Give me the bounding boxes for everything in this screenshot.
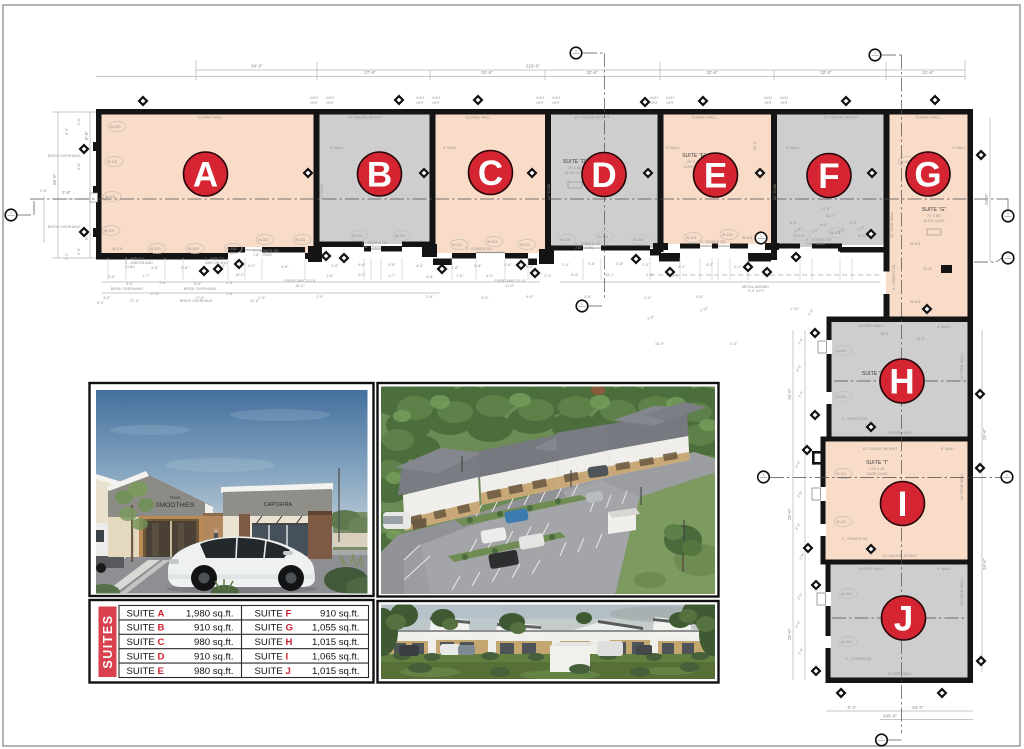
svg-text:3 - STAKES GD: 3 - STAKES GD — [466, 247, 492, 251]
svg-text:CLNG: CLNG — [125, 265, 135, 269]
svg-text:29'-6": 29'-6" — [982, 558, 987, 570]
svg-text:32'-6": 32'-6" — [706, 70, 718, 75]
svg-text:7-8" - GWG: 7-8" - GWG — [253, 253, 272, 257]
svg-text:980 sq.ft.: 980 sq.ft. — [194, 637, 233, 648]
svg-text:12" STUD: 12" STUD — [547, 184, 551, 200]
svg-text:5'-8": 5'-8" — [426, 275, 434, 279]
svg-text:W-101: W-101 — [107, 160, 118, 164]
svg-text:6'-0": 6'-0" — [77, 162, 81, 170]
svg-text:2 - STAKES GD: 2 - STAKES GD — [842, 417, 868, 421]
svg-text:E: E — [704, 157, 727, 196]
svg-text:E: E — [158, 666, 165, 677]
svg-text:6'-0": 6'-0" — [194, 282, 202, 286]
svg-text:SLOPED WALL: SLOPED WALL — [915, 116, 940, 120]
svg-text:12" STUD: 12" STUD — [320, 184, 324, 200]
svg-text:BRICK OVERHANG: BRICK OVERHANG — [180, 299, 213, 303]
svg-text:W-101: W-101 — [841, 592, 852, 596]
svg-text:1,015 sq.ft.: 1,015 sq.ft. — [312, 666, 359, 677]
svg-text:W-101: W-101 — [836, 472, 847, 476]
svg-text:A: A — [158, 608, 165, 619]
svg-text:910 sq.ft.: 910 sq.ft. — [194, 623, 233, 634]
svg-text:W-100: W-100 — [188, 247, 199, 251]
svg-text:2'-6": 2'-6" — [226, 292, 234, 296]
svg-text:SUITE: SUITE — [127, 637, 155, 648]
svg-text:4'x21: 4'x21 — [650, 96, 658, 100]
svg-text:SLOPED WALL: SLOPED WALL — [887, 672, 912, 676]
svg-text:F: F — [286, 608, 292, 619]
svg-text:W-101: W-101 — [520, 243, 531, 247]
svg-text:W-101: W-101 — [910, 300, 921, 304]
svg-text:6'-0": 6'-0" — [126, 282, 134, 286]
svg-text:4'x21: 4'x21 — [326, 96, 334, 100]
svg-text:54'-6": 54'-6" — [251, 64, 263, 69]
svg-text:SUITE: SUITE — [255, 666, 283, 677]
svg-text:D: D — [158, 652, 165, 663]
svg-text:6" WALL: 6" WALL — [330, 146, 344, 150]
svg-text:10' CEILING HEIGHT: 10' CEILING HEIGHT — [863, 447, 898, 451]
svg-text:16'-0": 16'-0" — [655, 342, 665, 346]
svg-text:GHT: GHT — [310, 101, 318, 105]
svg-text:W-101: W-101 — [910, 242, 921, 246]
svg-text:B: B — [158, 623, 165, 634]
svg-text:A: A — [193, 156, 218, 195]
svg-text:CAPOEIRA: CAPOEIRA — [264, 502, 293, 508]
svg-text:GHT: GHT — [432, 101, 440, 105]
svg-text:20'-6": 20'-6" — [923, 267, 933, 271]
svg-text:G: G — [914, 156, 941, 195]
svg-text:W-100: W-100 — [226, 247, 237, 251]
svg-text:6'-8": 6'-8" — [588, 262, 596, 266]
svg-text:7-8" - GWG: 7-8" - GWG — [575, 246, 594, 250]
svg-text:2'-6": 2'-6" — [258, 296, 266, 300]
svg-text:W-101: W-101 — [352, 234, 363, 238]
svg-text:SLOPED WALL: SLOPED WALL — [691, 116, 716, 120]
svg-text:1,055 sq.ft.: 1,055 sq.ft. — [312, 623, 359, 634]
svg-text:6'-8": 6'-8" — [526, 265, 534, 269]
svg-text:25'-0": 25'-0" — [787, 508, 792, 520]
svg-text:4" WALL: 4" WALL — [786, 146, 800, 150]
svg-text:2'-4": 2'-4" — [672, 274, 680, 278]
svg-text:6'-0": 6'-0" — [248, 264, 256, 268]
svg-text:16'-1": 16'-1" — [605, 273, 615, 277]
svg-text:4'x21: 4'x21 — [552, 96, 560, 100]
svg-text:2'-6": 2'-6" — [456, 274, 464, 278]
svg-text:27'-6": 27'-6" — [821, 207, 831, 211]
svg-text:16'-0": 16'-0" — [235, 273, 245, 277]
svg-text:SUITE: SUITE — [127, 652, 155, 663]
svg-text:GLRD CLNG: GLRD CLNG — [867, 472, 888, 476]
svg-text:W-101: W-101 — [686, 236, 697, 240]
svg-text:12" STUD WALL: 12" STUD WALL — [960, 353, 964, 380]
svg-text:GHT: GHT — [326, 101, 334, 105]
svg-text:I: I — [898, 485, 908, 524]
svg-text:W-101: W-101 — [722, 233, 733, 237]
svg-text:W-101: W-101 — [794, 234, 805, 238]
svg-text:SUITE: SUITE — [255, 637, 283, 648]
svg-text:GHT: GHT — [650, 101, 658, 105]
svg-text:2 - STAKES GD: 2 - STAKES GD — [842, 537, 868, 541]
svg-text:9'-0" A.F.F.: 9'-0" A.F.F. — [748, 289, 765, 293]
svg-text:2'-4": 2'-4" — [544, 274, 552, 278]
svg-text:2'-0": 2'-0" — [644, 296, 652, 300]
svg-text:5'-0": 5'-0" — [77, 247, 81, 255]
svg-text:W-101: W-101 — [104, 229, 115, 233]
svg-text:12" STUD WALL: 12" STUD WALL — [960, 578, 964, 605]
svg-text:6'-2": 6'-2" — [678, 265, 686, 269]
svg-text:H: H — [286, 637, 293, 648]
svg-text:2'-6": 2'-6" — [40, 189, 48, 193]
svg-text:4'-0": 4'-0" — [730, 342, 738, 346]
svg-text:W-101: W-101 — [560, 238, 571, 242]
svg-text:Texas: Texas — [170, 495, 181, 500]
svg-text:5'-8": 5'-8" — [584, 295, 592, 299]
svg-text:H: H — [889, 363, 914, 402]
svg-text:1,015 sq.ft.: 1,015 sq.ft. — [312, 637, 359, 648]
svg-text:345'-0": 345'-0" — [883, 714, 897, 719]
svg-text:W-100: W-100 — [110, 125, 121, 129]
svg-text:7-8" - GWG: 7-8" - GWG — [806, 242, 825, 246]
svg-text:27'-0": 27'-0" — [130, 299, 140, 303]
svg-text:29'-6": 29'-6" — [982, 428, 987, 440]
svg-text:2'-6": 2'-6" — [159, 281, 167, 285]
svg-text:2'-6": 2'-6" — [77, 117, 81, 125]
svg-text:2'-4": 2'-4" — [562, 263, 570, 267]
svg-text:8'-0": 8'-0" — [84, 131, 89, 140]
svg-text:6'-2": 6'-2" — [734, 265, 742, 269]
svg-text:6'-8": 6'-8" — [358, 263, 366, 267]
svg-text:W-101: W-101 — [295, 238, 306, 242]
svg-text:7-8" - GWG: 7-8" - GWG — [362, 245, 381, 249]
svg-text:5'-4": 5'-4" — [848, 705, 857, 710]
svg-text:910 sq.ft.: 910 sq.ft. — [194, 652, 233, 663]
svg-text:2'-6": 2'-6" — [326, 274, 334, 278]
svg-text:W-101: W-101 — [633, 238, 644, 242]
svg-text:2'-6": 2'-6" — [226, 281, 234, 285]
svg-text:1'-10": 1'-10" — [790, 307, 800, 311]
svg-text:SUITE: SUITE — [127, 666, 155, 677]
svg-text:16'-0": 16'-0" — [787, 388, 792, 400]
svg-text:2'-6": 2'-6" — [426, 295, 434, 299]
svg-text:D: D — [591, 156, 616, 195]
svg-text:6'-8": 6'-8" — [151, 266, 159, 270]
svg-text:6'-2": 6'-2" — [358, 273, 366, 277]
svg-text:GHT: GHT — [666, 101, 674, 105]
svg-text:4'x21: 4'x21 — [432, 96, 440, 100]
svg-text:16'-2": 16'-2" — [295, 284, 305, 288]
svg-text:J: J — [894, 600, 913, 639]
svg-text:1'-8": 1'-8" — [451, 266, 459, 270]
svg-text:SUITE: SUITE — [255, 652, 283, 663]
svg-text:W-101: W-101 — [841, 640, 852, 644]
svg-text:2 - STAKES GD: 2 - STAKES GD — [846, 657, 872, 661]
svg-text:50'-0": 50'-0" — [753, 140, 757, 150]
svg-text:5'-0": 5'-0" — [97, 301, 105, 305]
svg-text:SUITE "G": SUITE "G" — [922, 207, 947, 213]
svg-text:SLOPED WALL: SLOPED WALL — [197, 116, 222, 120]
svg-text:4'x21: 4'x21 — [764, 96, 772, 100]
svg-text:BRICK OVERHANG: BRICK OVERHANG — [111, 287, 144, 291]
svg-text:W-101: W-101 — [742, 236, 753, 240]
svg-text:FURR DWN TO 10': FURR DWN TO 10' — [284, 279, 315, 283]
svg-text:SMOOTHIES: SMOOTHIES — [155, 502, 195, 509]
svg-text:W-100: W-100 — [112, 247, 123, 251]
svg-text:W-101: W-101 — [836, 349, 847, 353]
svg-text:6'-8": 6'-8" — [474, 264, 482, 268]
svg-text:7'-2": 7'-2" — [65, 252, 69, 260]
svg-text:SUITE "I": SUITE "I" — [866, 460, 888, 466]
svg-text:5'-8": 5'-8" — [504, 263, 512, 267]
svg-text:GHT: GHT — [764, 101, 772, 105]
svg-text:21'6 X 45': 21'6 X 45' — [869, 467, 885, 471]
svg-text:18'-0": 18'-0" — [916, 337, 926, 341]
svg-text:J: J — [286, 666, 291, 677]
svg-text:16'-1": 16'-1" — [825, 214, 835, 218]
svg-text:6'-0": 6'-0" — [486, 274, 494, 278]
svg-text:4'x21: 4'x21 — [780, 96, 788, 100]
svg-text:4'x21: 4'x21 — [536, 96, 544, 100]
svg-text:1'-7": 1'-7" — [142, 274, 150, 278]
svg-text:2 - STAKES GD: 2 - STAKES GD — [700, 240, 726, 244]
svg-text:SUITE: SUITE — [127, 608, 155, 619]
svg-text:F: F — [818, 157, 839, 196]
svg-text:4" WALL: 4" WALL — [952, 146, 966, 150]
svg-text:1,065 sq.ft.: 1,065 sq.ft. — [312, 652, 359, 663]
svg-text:20' X 50': 20' X 50' — [927, 214, 941, 218]
svg-text:G: G — [286, 623, 293, 634]
svg-text:C: C — [158, 637, 165, 648]
svg-text:10' CEILING HEIGHT: 10' CEILING HEIGHT — [824, 116, 859, 120]
svg-text:4" WALL: 4" WALL — [443, 146, 457, 150]
svg-text:219'-6": 219'-6" — [526, 64, 540, 69]
svg-text:980 sq.ft.: 980 sq.ft. — [194, 666, 233, 677]
svg-text:25'-0": 25'-0" — [787, 628, 792, 640]
svg-text:SLOPED WALL: SLOPED WALL — [858, 567, 883, 571]
svg-text:SUITE: SUITE — [127, 623, 155, 634]
svg-text:2'-4": 2'-4" — [642, 263, 650, 267]
svg-text:10' CEILING HEIGHT: 10' CEILING HEIGHT — [883, 554, 918, 558]
svg-text:5'-8": 5'-8" — [108, 275, 116, 279]
svg-text:2'-6": 2'-6" — [62, 190, 71, 195]
svg-text:C: C — [478, 154, 503, 193]
svg-text:6'-2": 6'-2" — [706, 263, 714, 267]
svg-text:SUITES: SUITES — [101, 614, 115, 668]
svg-text:8'-0": 8'-0" — [65, 127, 69, 135]
svg-text:5'-8": 5'-8" — [281, 265, 289, 269]
svg-text:W-101: W-101 — [452, 243, 463, 247]
svg-text:3 - STAKES GD: 3 - STAKES GD — [892, 264, 896, 290]
svg-text:56'-6": 56'-6" — [52, 173, 57, 185]
svg-text:5'-8": 5'-8" — [481, 296, 489, 300]
svg-text:2'-8": 2'-8" — [331, 264, 339, 268]
svg-text:GHT: GHT — [780, 101, 788, 105]
svg-text:W-101: W-101 — [836, 520, 847, 524]
svg-text:6'-8": 6'-8" — [571, 273, 579, 277]
svg-text:12" STUD: 12" STUD — [773, 184, 777, 200]
svg-text:SUITE: SUITE — [255, 608, 283, 619]
svg-text:FURR DWN TO 10': FURR DWN TO 10' — [494, 279, 525, 283]
svg-text:4" WALL: 4" WALL — [937, 325, 951, 329]
svg-text:6" WALL: 6" WALL — [941, 447, 955, 451]
svg-text:SLOPED WALL: SLOPED WALL — [465, 116, 490, 120]
svg-text:2'-0": 2'-0" — [316, 295, 324, 299]
svg-text:W-101: W-101 — [487, 240, 498, 244]
svg-text:32'-6": 32'-6" — [481, 70, 493, 75]
svg-text:5'-8": 5'-8" — [103, 296, 111, 300]
svg-text:GLRD CLNG: GLRD CLNG — [924, 219, 945, 223]
svg-text:20' X 45': 20' X 45' — [568, 166, 582, 170]
svg-text:5'-8": 5'-8" — [616, 262, 624, 266]
svg-text:6'-8": 6'-8" — [416, 264, 424, 268]
svg-text:6'-8": 6'-8" — [646, 273, 654, 277]
svg-text:SLOPED WALL: SLOPED WALL — [858, 324, 883, 328]
svg-text:6" WALL: 6" WALL — [666, 146, 680, 150]
svg-text:17'-6": 17'-6" — [505, 284, 515, 288]
svg-text:1'-7": 1'-7" — [388, 274, 396, 278]
svg-text:910 sq.ft.: 910 sq.ft. — [320, 608, 359, 619]
svg-text:6'-4": 6'-4" — [820, 223, 828, 227]
svg-text:32'-6": 32'-6" — [820, 70, 832, 75]
svg-text:GHT: GHT — [416, 101, 424, 105]
svg-text:SUITE "D": SUITE "D" — [563, 159, 587, 165]
svg-text:I: I — [286, 652, 289, 663]
svg-text:W-101: W-101 — [836, 395, 847, 399]
svg-text:BRICK OVERHANG: BRICK OVERHANG — [184, 287, 217, 291]
svg-text:10' CEILING HEIGHT: 10' CEILING HEIGHT — [348, 116, 383, 120]
svg-text:1,980 sq.ft.: 1,980 sq.ft. — [186, 608, 233, 619]
svg-text:SLOPED WALL: SLOPED WALL — [887, 431, 912, 435]
svg-text:SUITE: SUITE — [255, 623, 283, 634]
svg-text:GHT: GHT — [536, 101, 544, 105]
svg-text:21'-6": 21'-6" — [250, 299, 260, 303]
svg-text:W-101: W-101 — [598, 235, 609, 239]
svg-text:54'-0": 54'-0" — [912, 705, 924, 710]
svg-text:B: B — [367, 156, 392, 195]
svg-text:5'-8": 5'-8" — [181, 266, 189, 270]
svg-text:W-100: W-100 — [150, 247, 161, 251]
svg-text:4'x21: 4'x21 — [416, 96, 424, 100]
svg-text:5'-8": 5'-8" — [388, 263, 396, 267]
svg-text:W-101: W-101 — [258, 238, 269, 242]
svg-text:4'x21: 4'x21 — [310, 96, 318, 100]
svg-text:4'x21: 4'x21 — [666, 96, 674, 100]
svg-text:GHT: GHT — [552, 101, 560, 105]
svg-text:31'-6": 31'-6" — [922, 70, 934, 75]
svg-text:6'-0": 6'-0" — [526, 295, 534, 299]
svg-text:8'-5": 8'-5" — [850, 221, 858, 225]
svg-text:27'-6": 27'-6" — [364, 70, 376, 75]
svg-text:5'-8": 5'-8" — [696, 295, 704, 299]
svg-text:BRICK OVERHANG: BRICK OVERHANG — [48, 225, 81, 229]
svg-text:12" STUD WALL: 12" STUD WALL — [890, 211, 894, 238]
svg-text:W-101: W-101 — [105, 195, 116, 199]
svg-text:32'-6": 32'-6" — [586, 70, 598, 75]
svg-text:W-101: W-101 — [395, 234, 406, 238]
svg-text:4" WALL: 4" WALL — [937, 567, 951, 571]
svg-text:16'-0": 16'-0" — [880, 332, 890, 336]
svg-text:27'-6": 27'-6" — [150, 292, 160, 296]
svg-text:8'-5": 8'-5" — [790, 221, 798, 225]
svg-text:BRICK OVERHANG: BRICK OVERHANG — [48, 154, 81, 158]
